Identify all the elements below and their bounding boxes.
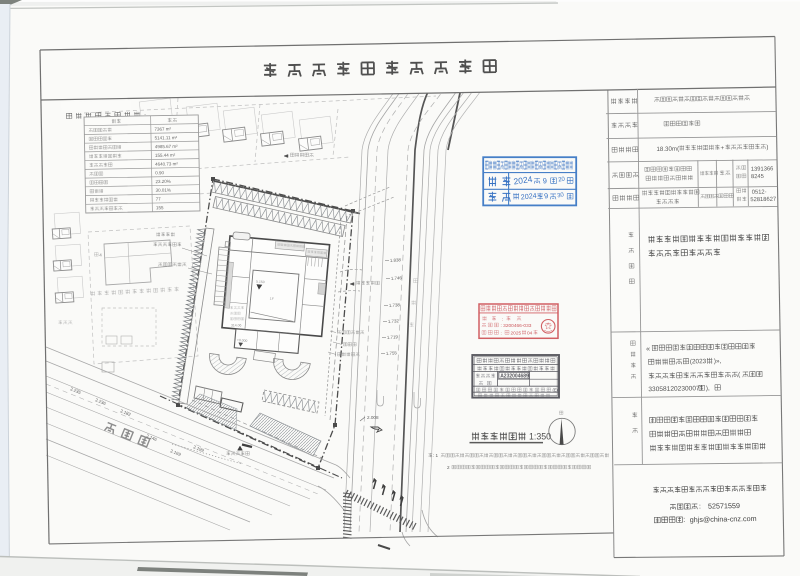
svg-text:5141.11 m²: 5141.11 m² [155,135,178,140]
svg-text:: 1: : 1 [433,453,439,458]
svg-text::: : [502,317,503,322]
svg-text:ghjs@china-cnz.com: ghjs@china-cnz.com [690,514,757,524]
svg-text:18.30m(: 18.30m( [656,146,680,153]
svg-text:: 3200466-033: : 3200466-033 [501,323,532,329]
svg-text:A232004689: A232004689 [500,373,529,379]
svg-text:2.008: 2.008 [367,415,379,420]
svg-text:,: , [764,235,766,242]
svg-text:04: 04 [527,330,533,336]
svg-text:155.44 m²: 155.44 m² [155,153,176,158]
svg-text:4: 4 [99,252,102,257]
svg-text:30.01%: 30.01% [156,188,171,193]
svg-text:52818627: 52818627 [750,197,776,203]
svg-text:1.746: 1.746 [391,275,403,281]
svg-text:4985.67 m²: 4985.67 m² [155,144,178,149]
svg-text:52571559: 52571559 [708,501,740,511]
svg-text:): ) [766,144,768,151]
svg-text::: : [683,515,685,524]
svg-text:)»,: )», [714,358,722,365]
svg-text:+: + [720,145,724,152]
svg-text:«: « [646,344,650,353]
svg-text:77: 77 [156,197,162,202]
svg-text:23.20%: 23.20% [155,179,170,184]
svg-text:(2023: (2023 [690,358,707,365]
svg-text:1.738: 1.738 [389,302,401,308]
svg-text:0.90: 0.90 [155,170,164,175]
svg-text:330581202300071: 330581202300071 [648,385,703,393]
svg-text:0512-: 0512- [752,190,767,196]
svg-text:1391366: 1391366 [751,166,774,172]
svg-text:7367 m²: 7367 m² [154,126,171,131]
svg-text::: : [501,331,502,336]
svg-text:2: 2 [447,465,450,470]
svg-text:1.838: 1.838 [390,257,402,263]
svg-text:1.719: 1.719 [387,334,399,340]
svg-text:2025: 2025 [511,330,522,336]
svg-text:2024: 2024 [520,191,537,202]
svg-text:4640.73 m²: 4640.73 m² [155,161,178,166]
svg-text:5.150: 5.150 [256,279,265,284]
svg-text:8245: 8245 [751,174,764,180]
svg-text:1.732: 1.732 [388,318,400,324]
svg-text:(E): (E) [553,387,559,392]
svg-text:314.06: 314.06 [231,324,241,328]
svg-text:1:350: 1:350 [529,432,551,442]
svg-text::: : [699,503,701,510]
svg-text:155: 155 [156,205,164,210]
svg-text:),: ), [706,385,710,392]
svg-text:1.755: 1.755 [386,350,398,356]
